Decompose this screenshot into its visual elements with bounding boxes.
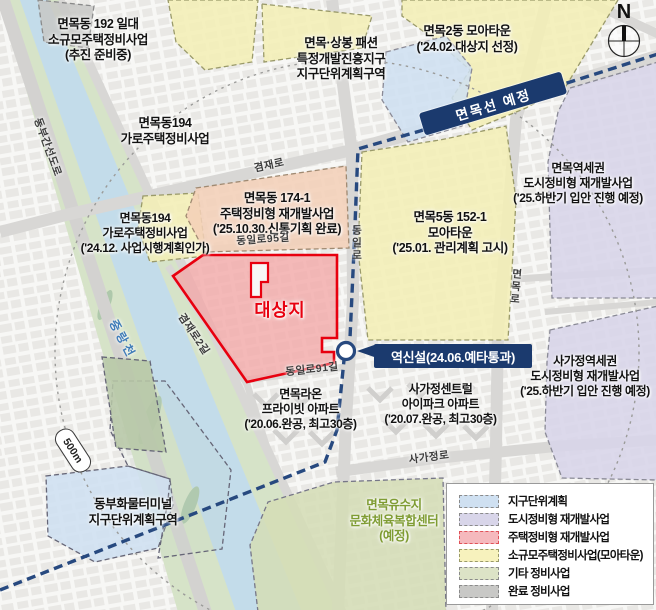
label-myeonmok5-moatown: 면목5동 152-1 모아타운 ('25.01. 관리계획 고시) xyxy=(360,210,540,257)
legend-label: 기타 정비사업 xyxy=(508,565,570,581)
label-myeonmok-station-area: 면목역세권 도시정비형 재개발사업 ('25.하반기 입안 진행 예정) xyxy=(500,161,656,206)
label-myeonmok-194-upper: 면목동194 가로주택정비사업 xyxy=(85,116,245,147)
legend-label: 완료 정비사업 xyxy=(508,583,570,599)
legend-row: 완료 정비사업 xyxy=(459,582,649,600)
legend-label: 지구단위계획 xyxy=(508,493,567,509)
label-myeonmok-194-lower: 면목동194 가로주택정비사업 ('24.12. 사업시행계획인가) xyxy=(45,211,245,256)
legend-row: 소규모주택정비사업(모아타운) xyxy=(459,546,649,564)
compass: N xyxy=(604,2,644,65)
road-label-dongil-ro: 동일로 xyxy=(350,224,365,262)
legend-swatch-other-projects xyxy=(459,567,499,580)
legend-swatch-urban-redevelopment xyxy=(459,513,499,526)
compass-north-label: N xyxy=(604,2,644,22)
label-dongbu-terminal: 동부화물터미널 지구단위계획구역 xyxy=(52,497,214,528)
legend-row: 지구단위계획 xyxy=(459,492,649,510)
new-station-marker xyxy=(338,343,355,360)
legend-label: 소규모주택정비사업(모아타운) xyxy=(508,547,643,563)
legend-row: 도시정비형 재개발사업 xyxy=(459,510,649,528)
legend-row: 기타 정비사업 xyxy=(459,564,649,582)
legend: 지구단위계획 도시정비형 재개발사업 주택정비형 재개발사업 소규모주택정비사업… xyxy=(446,483,654,605)
new-station-badge: 역신설(24.06.예타통과) xyxy=(374,344,532,368)
legend-label: 도시정비형 재개발사업 xyxy=(508,511,609,527)
legend-swatch-housing-redevelopment xyxy=(459,531,499,544)
label-myeonmok2-moatown: 면목2동 모아타운 ('24.02.대상지 선정) xyxy=(382,24,552,55)
legend-row: 주택정비형 재개발사업 xyxy=(459,528,649,546)
label-myeonmok-192: 면목동 192 일대 소규모주택정비사업 (추진 준비중) xyxy=(8,17,188,64)
legend-swatch-district-unit-plan xyxy=(459,495,499,508)
label-target-site: 대상지 xyxy=(230,300,330,322)
legend-label: 주택정비형 재개발사업 xyxy=(508,529,609,545)
compass-rose-icon xyxy=(605,22,643,60)
legend-swatch-completed-projects xyxy=(459,585,499,598)
redevelopment-map: 면목동 192 일대 소규모주택정비사업 (추진 준비중) 면목·상봉 패션 특… xyxy=(0,0,656,610)
label-sagajeong-central-apt: 사가정센트럴 아이파크 아파트 ('20.07.완공, 최고30층) xyxy=(358,382,523,427)
legend-swatch-small-scale-moatown xyxy=(459,549,499,562)
